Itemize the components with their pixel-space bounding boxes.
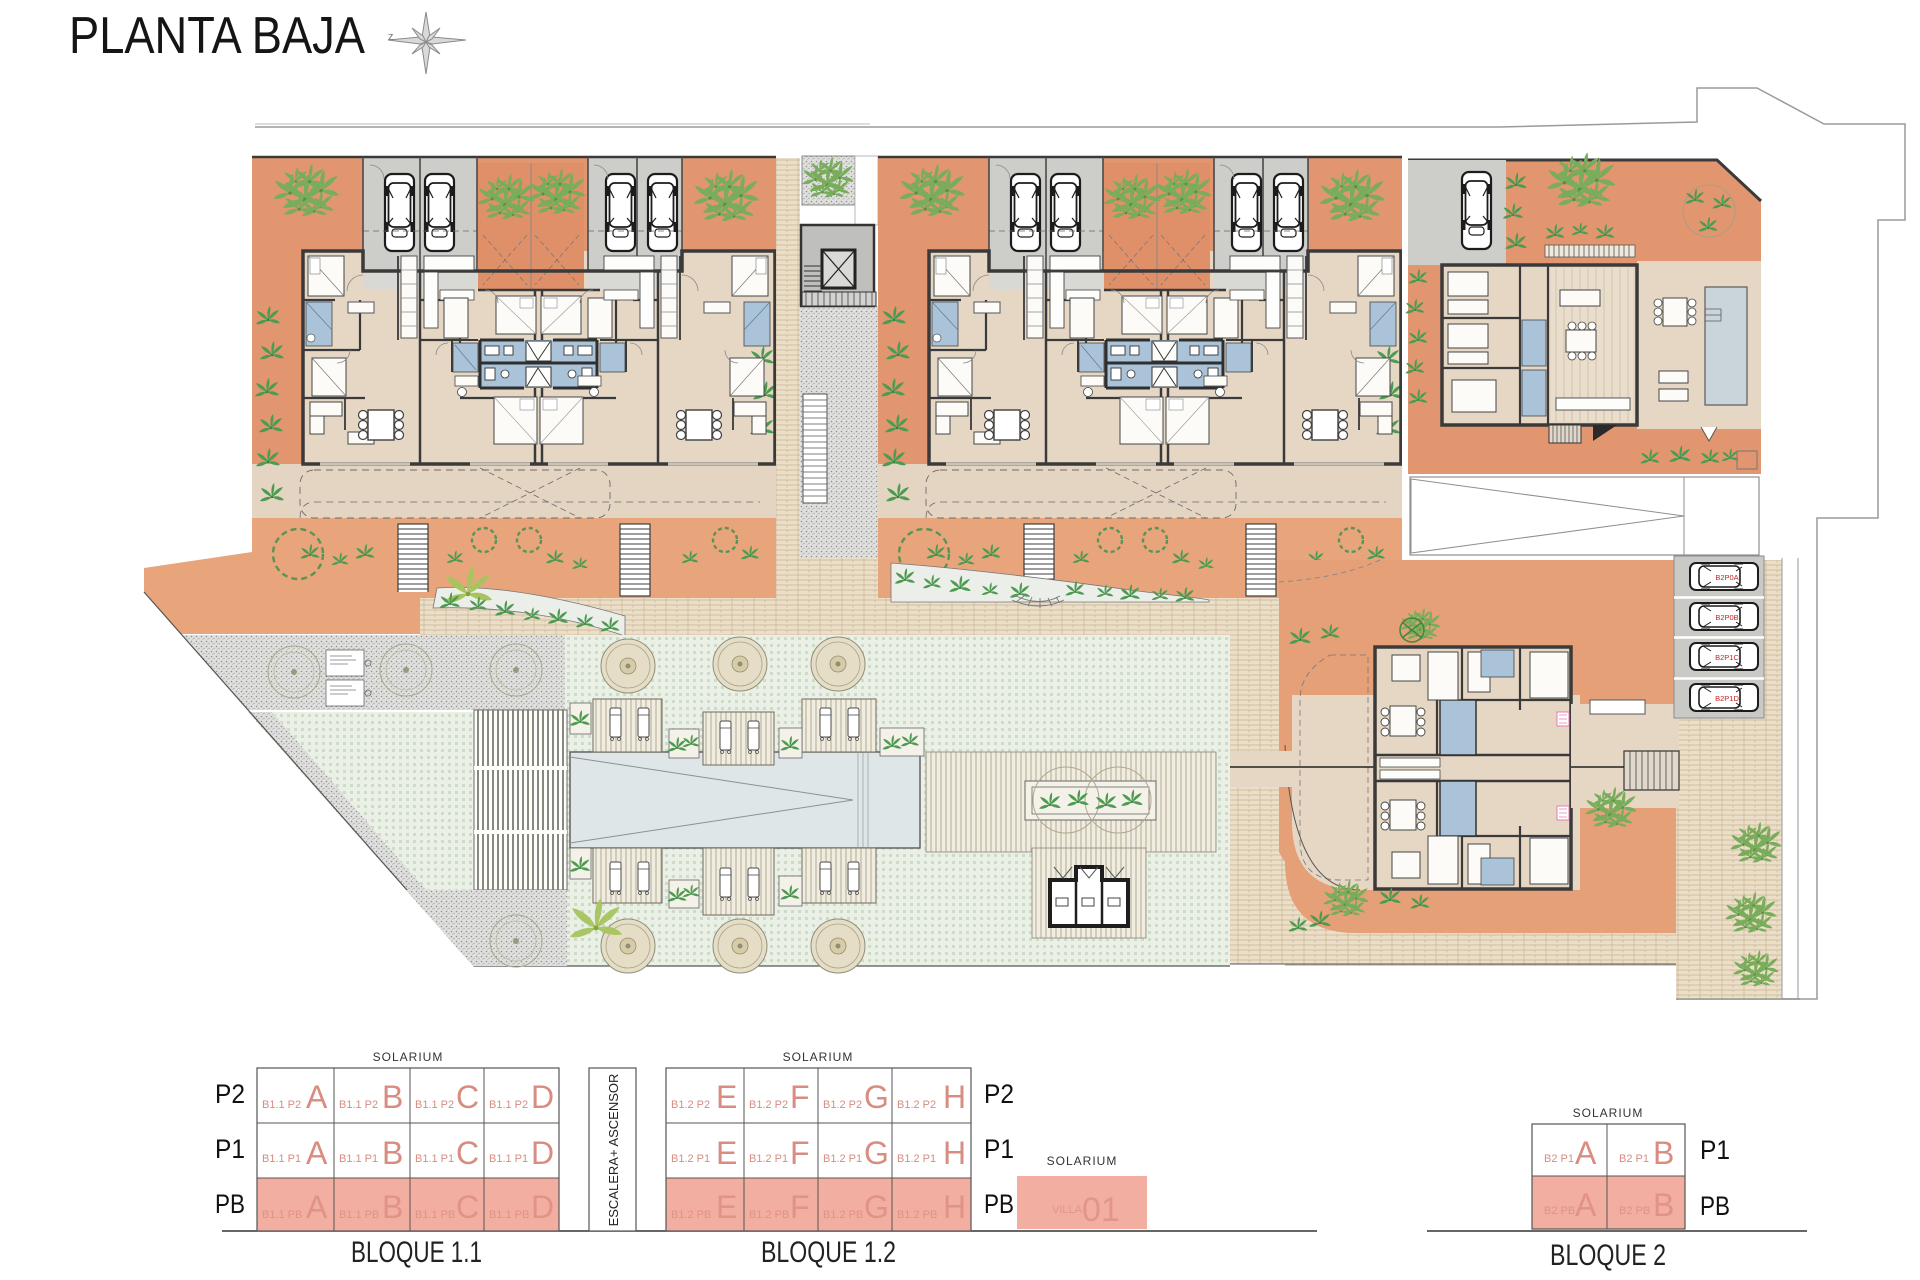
- svg-text:PLANTA BAJA: PLANTA BAJA: [69, 7, 365, 65]
- svg-text:B2P0A: B2P0A: [1715, 573, 1738, 582]
- svg-text:B: B: [382, 1079, 403, 1115]
- svg-text:BLOQUE 1.2: BLOQUE 1.2: [761, 1236, 896, 1269]
- svg-text:B1.1 PB: B1.1 PB: [262, 1209, 302, 1221]
- svg-text:B1.1 PB: B1.1 PB: [415, 1209, 455, 1221]
- svg-text:G: G: [864, 1135, 889, 1171]
- svg-text:B: B: [1653, 1135, 1674, 1171]
- svg-text:G: G: [864, 1079, 889, 1115]
- svg-text:G: G: [864, 1189, 889, 1225]
- svg-text:F: F: [790, 1189, 810, 1225]
- svg-text:H: H: [943, 1189, 966, 1225]
- svg-text:B1.2 P2: B1.2 P2: [671, 1099, 710, 1111]
- svg-text:D: D: [531, 1189, 554, 1225]
- svg-text:E: E: [716, 1135, 737, 1171]
- svg-text:F: F: [790, 1079, 810, 1115]
- svg-text:B2 PB: B2 PB: [1619, 1205, 1650, 1217]
- svg-text:H: H: [943, 1135, 966, 1171]
- svg-text:BLOQUE 2: BLOQUE 2: [1550, 1239, 1666, 1272]
- svg-text:B1.1 P2: B1.1 P2: [262, 1099, 301, 1111]
- svg-text:B: B: [382, 1135, 403, 1171]
- svg-text:H: H: [943, 1079, 966, 1115]
- svg-text:B1.1 P2: B1.1 P2: [415, 1099, 454, 1111]
- svg-text:B1.2 P1: B1.2 P1: [671, 1153, 710, 1165]
- svg-text:01: 01: [1082, 1191, 1120, 1229]
- svg-text:C: C: [456, 1079, 479, 1115]
- svg-text:B1.1 P2: B1.1 P2: [489, 1099, 528, 1111]
- svg-text:B1.2 PB: B1.2 PB: [823, 1209, 863, 1221]
- svg-text:B1.2 P1: B1.2 P1: [897, 1153, 936, 1165]
- svg-text:B1.2 PB: B1.2 PB: [671, 1209, 711, 1221]
- svg-text:B1.2 PB: B1.2 PB: [749, 1209, 789, 1221]
- svg-text:B2P1C: B2P1C: [1715, 653, 1739, 662]
- svg-text:PB: PB: [1700, 1191, 1730, 1221]
- svg-text:B1.2 P2: B1.2 P2: [897, 1099, 936, 1111]
- svg-text:BLOQUE 1.1: BLOQUE 1.1: [351, 1236, 482, 1269]
- svg-text:B1.1 P1: B1.1 P1: [415, 1153, 454, 1165]
- svg-text:P1: P1: [984, 1134, 1014, 1164]
- svg-text:A: A: [306, 1079, 328, 1115]
- svg-text:B1.1 P1: B1.1 P1: [489, 1153, 528, 1165]
- svg-text:P2: P2: [215, 1079, 245, 1109]
- svg-text:B1.1 PB: B1.1 PB: [339, 1209, 379, 1221]
- svg-text:B: B: [1653, 1187, 1674, 1223]
- svg-text:P2: P2: [984, 1079, 1014, 1109]
- svg-text:B1.1 P1: B1.1 P1: [262, 1153, 301, 1165]
- svg-text:PB: PB: [215, 1189, 245, 1219]
- svg-text:P1: P1: [1700, 1135, 1730, 1165]
- svg-text:D: D: [531, 1135, 554, 1171]
- svg-text:D: D: [531, 1079, 554, 1115]
- svg-text:B1.2 P2: B1.2 P2: [823, 1099, 862, 1111]
- svg-text:B1.2 P1: B1.2 P1: [749, 1153, 788, 1165]
- svg-text:A: A: [306, 1189, 328, 1225]
- svg-text:C: C: [456, 1189, 479, 1225]
- svg-text:VILLA: VILLA: [1052, 1204, 1083, 1216]
- svg-text:B1.1 P1: B1.1 P1: [339, 1153, 378, 1165]
- svg-text:B2 P1: B2 P1: [1619, 1153, 1649, 1165]
- svg-text:B1.1 PB: B1.1 PB: [489, 1209, 529, 1221]
- svg-text:SOLARIUM: SOLARIUM: [373, 1050, 444, 1064]
- svg-text:A: A: [306, 1135, 328, 1171]
- svg-text:C: C: [456, 1135, 479, 1171]
- svg-text:B1.1 P2: B1.1 P2: [339, 1099, 378, 1111]
- svg-text:z: z: [388, 31, 394, 43]
- svg-text:F: F: [790, 1135, 810, 1171]
- svg-text:B: B: [382, 1189, 403, 1225]
- svg-text:E: E: [716, 1189, 737, 1225]
- svg-text:B1.2 P2: B1.2 P2: [749, 1099, 788, 1111]
- svg-text:B1.2 PB: B1.2 PB: [897, 1209, 937, 1221]
- svg-text:B2 PB: B2 PB: [1544, 1205, 1575, 1217]
- svg-text:SOLARIUM: SOLARIUM: [1573, 1106, 1644, 1120]
- svg-text:A: A: [1575, 1135, 1597, 1171]
- svg-text:ESCALERA+ ASCENSOR: ESCALERA+ ASCENSOR: [606, 1074, 621, 1227]
- svg-text:A: A: [1575, 1187, 1597, 1223]
- svg-text:B2P0B: B2P0B: [1715, 613, 1738, 622]
- svg-text:P1: P1: [215, 1134, 245, 1164]
- svg-text:B1.2 P1: B1.2 P1: [823, 1153, 862, 1165]
- svg-text:SOLARIUM: SOLARIUM: [1047, 1154, 1118, 1168]
- svg-text:B2P1D: B2P1D: [1715, 694, 1739, 703]
- svg-text:PB: PB: [984, 1189, 1014, 1219]
- svg-text:B2 P1: B2 P1: [1544, 1153, 1574, 1165]
- svg-text:E: E: [716, 1079, 737, 1115]
- svg-text:SOLARIUM: SOLARIUM: [783, 1050, 854, 1064]
